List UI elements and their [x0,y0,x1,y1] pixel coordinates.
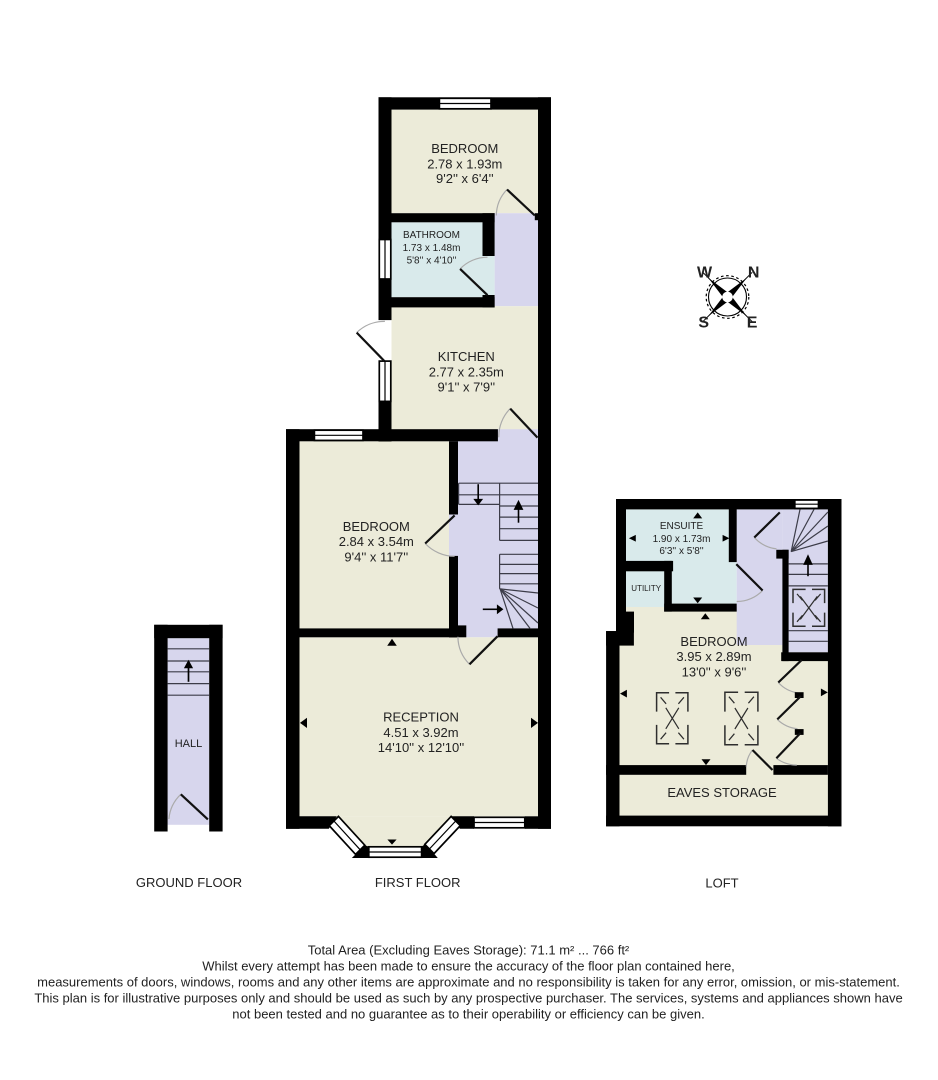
svg-text:W: W [697,265,713,282]
svg-text:6'3'' x 5'8'': 6'3'' x 5'8'' [659,546,703,557]
svg-text:5'8'' x 4'10'': 5'8'' x 4'10'' [407,255,457,266]
svg-text:9'1'' x 7'9'': 9'1'' x 7'9'' [438,380,496,395]
svg-text:1.73 x 1.48m: 1.73 x 1.48m [403,243,461,254]
svg-text:RECEPTION: RECEPTION [383,710,459,725]
svg-text:Whilst every attempt has been: Whilst every attempt has been made to en… [202,958,735,973]
svg-text:KITCHEN: KITCHEN [438,349,495,364]
svg-text:EAVES STORAGE: EAVES STORAGE [667,785,777,800]
svg-text:13'0'' x 9'6'': 13'0'' x 9'6'' [682,665,747,680]
svg-text:not been tested and no guarant: not been tested and no guarantee as to t… [232,1006,704,1021]
svg-text:N: N [748,265,760,282]
svg-text:BATHROOM: BATHROOM [403,230,460,241]
svg-text:LOFT: LOFT [705,876,738,891]
svg-text:3.95 x 2.89m: 3.95 x 2.89m [676,649,751,664]
svg-text:HALL: HALL [175,738,203,750]
svg-text:FIRST FLOOR: FIRST FLOOR [375,875,461,890]
svg-text:4.51 x 3.92m: 4.51 x 3.92m [383,725,458,740]
svg-text:measurements of doors, windows: measurements of doors, windows, rooms an… [37,974,900,989]
svg-text:ENSUITE: ENSUITE [660,521,704,532]
svg-text:2.84 x 3.54m: 2.84 x 3.54m [339,534,414,549]
svg-text:BEDROOM: BEDROOM [431,141,498,156]
svg-text:9'4'' x 11'7'': 9'4'' x 11'7'' [344,549,408,564]
svg-text:1.90 x 1.73m: 1.90 x 1.73m [653,534,711,545]
svg-text:BEDROOM: BEDROOM [343,519,410,534]
svg-text:S: S [698,314,709,331]
svg-text:UTILITY: UTILITY [631,584,661,593]
svg-text:GROUND FLOOR: GROUND FLOOR [136,875,242,890]
svg-text:E: E [747,314,758,331]
svg-text:2.77 x 2.35m: 2.77 x 2.35m [429,364,504,379]
svg-text:9'2'' x 6'4'': 9'2'' x 6'4'' [436,171,494,186]
svg-text:14'10'' x 12'10'': 14'10'' x 12'10'' [378,740,464,755]
svg-text:Total Area (Excluding Eaves St: Total Area (Excluding Eaves Storage): 71… [308,942,630,957]
svg-text:BEDROOM: BEDROOM [680,634,747,649]
svg-text:This plan is for illustrative: This plan is for illustrative purposes o… [34,990,902,1005]
svg-text:2.78 x 1.93m: 2.78 x 1.93m [427,156,502,171]
